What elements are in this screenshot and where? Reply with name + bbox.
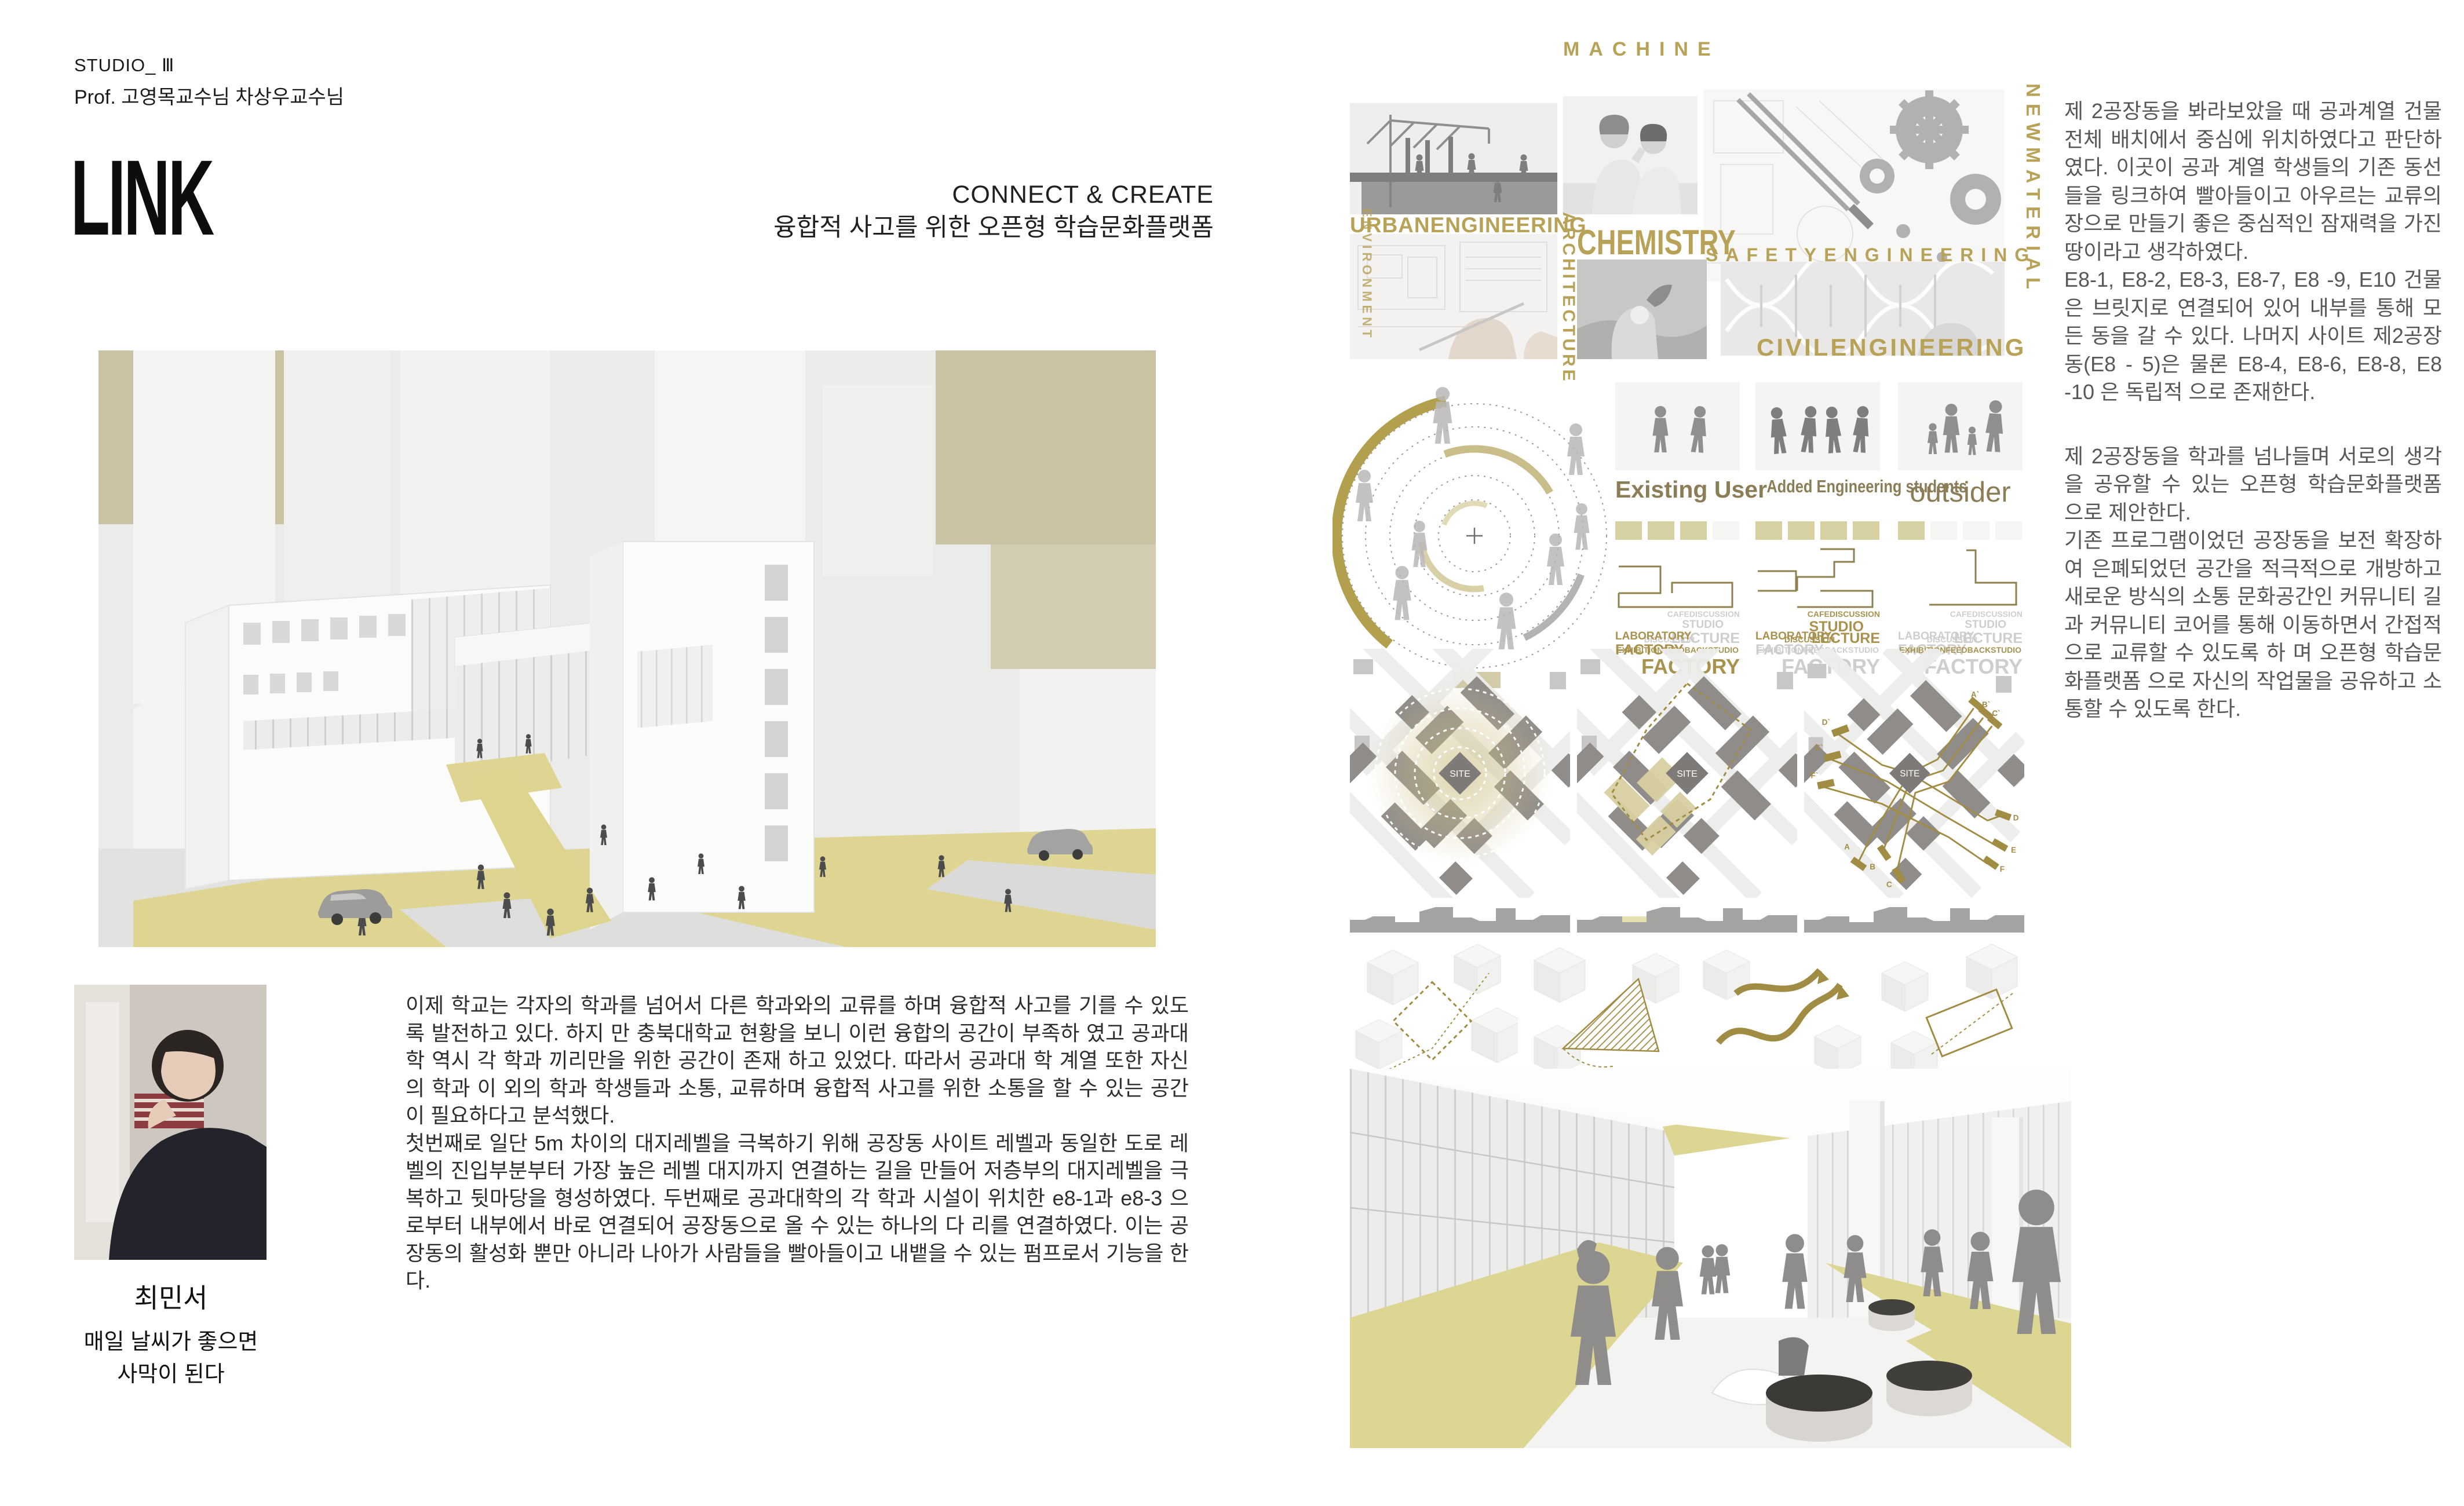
cloud-word: CAFEDISCUSSION [1950,609,2023,619]
right-paragraph-1: 제 2공장동을 봐라보았을 때 공과계열 건물 전체 배치에서 중심에 위치하였… [2064,97,2442,407]
program-squares-students [1755,521,1880,540]
footprint-diagram-outsider [1898,546,2023,609]
group-label-existing-user: Existing User [1615,476,1740,503]
author-motto-line1: 매일 날씨가 좋으면 [46,1326,295,1358]
route-label: F` [1811,772,1819,780]
cloud-word: LABORATORY [1898,630,1974,643]
route-label: A [1844,842,1850,851]
cloud-word: CAFEDISCUSSION [1667,609,1740,619]
route-label: E` [1815,744,1823,752]
author-photo [74,985,267,1260]
route-label: B [1870,862,1875,871]
collage-word-safetyengineering: SAFETYENGINEERING [1706,244,2036,266]
route-label: E [2011,846,2016,854]
circulation-circle-diagram [1333,371,1616,695]
program-squares-outsider [1898,521,2023,540]
intro-paragraph-1: 이제 학교는 각자의 학과를 넘어서 다른 학과와의 교류를 하며 융합적 사고… [406,992,1189,1129]
intro-text: 이제 학교는 각자의 학과를 넘어서 다른 학과와의 교류를 하며 융합적 사고… [406,992,1189,1295]
footprint-diagram-students [1755,546,1880,609]
subtitle-block: CONNECT & CREATE 융합적 사고를 위한 오픈형 학습문화플랫폼 [742,178,1214,244]
site-label: SITE [1677,769,1698,779]
plant-experiment-photo [1577,259,1707,359]
cloud-word: STUDIO [1965,619,2006,631]
collage-word-urbanengineering: URBANENGINEERING [1350,213,1587,237]
iso-diagram-ramp [1523,938,1691,1083]
author-photo-image [74,985,267,1260]
right-paragraph-2: 제 2공장동을 학과를 넘나들며 서로의 생각을 공유할 수 있는 오픈형 학습… [2064,443,2442,723]
cloud-word: LABORATORY [1615,630,1692,643]
professors-label: Prof. 고영목교수님 차상우교수님 [74,81,344,109]
site-map-bridge-connections: SITE [1577,649,1797,898]
program-squares-existing [1615,521,1740,540]
crane-photo [1350,103,1557,214]
site-map-center-potential: SITE [1350,649,1570,898]
site-analysis-maps: SITE SITE [1350,649,2045,1089]
cloud-word: STUDIO [1682,619,1724,631]
cloud-word: LABORATORY [1755,630,1832,643]
route-label: D` [1822,718,1830,727]
interior-render-image [1350,1069,2071,1448]
chemists-photo [1563,96,1698,214]
site-label: SITE [1450,769,1470,779]
architecture-hands-photo [1350,234,1557,359]
page-title: LINK [71,145,213,252]
subtitle-english: CONNECT & CREATE [742,178,1214,211]
route-label: A` [1971,690,1979,699]
group-label-added-students: Added Engineering students [1766,476,1868,497]
subtitle-korean: 융합적 사고를 위한 오픈형 학습문화플랫폼 [742,211,1214,244]
site-section-strip [1804,902,2024,933]
presentation-board: STUDIO_ Ⅲ Prof. 고영목교수님 차상우교수님 LINK CONNE… [0,0,2464,1506]
user-card-existing [1615,382,1740,470]
collage-word-machine: MACHINE [1563,38,1720,61]
site-section-strip [1577,902,1797,933]
author-motto-line2: 사막이 된다 [46,1358,295,1391]
route-label: C [1886,880,1892,889]
user-card-students [1755,382,1880,470]
exterior-render-image [98,350,1156,947]
user-card-outsider [1898,382,2023,470]
collage-word-civilengineering: CIVILENGINEERING [1757,334,2026,361]
site-label: SITE [1900,769,1919,779]
cloud-word: CAFEDISCUSSION [1808,609,1880,619]
route-label: C` [1992,709,2000,718]
route-label: B` [1982,700,1990,709]
route-label: F [2000,865,2005,873]
iso-diagram-flow [1695,938,1863,1083]
author-caption: 최민서 매일 날씨가 좋으면 사막이 된다 [46,1277,295,1391]
author-name: 최민서 [46,1277,295,1315]
footprint-diagram-existing [1615,546,1740,609]
site-section-strip [1350,902,1570,933]
studio-label: STUDIO_ Ⅲ [74,55,174,76]
intro-paragraph-2: 첫번째로 일단 5m 차이의 대지레벨을 극복하기 위해 공장동 사이트 레벨과… [406,1129,1189,1295]
engineering-collage: MACHINE NEWMATERIAL URBANENGINEERING ARC… [1350,35,2045,359]
group-label-outsider: outsider [1898,476,2023,509]
collage-word-environment: ENVIRONMENT [1359,209,1374,341]
iso-diagram-extension [1868,938,2036,1083]
route-label: D [2013,814,2019,823]
collage-word-architecture: ARCHITECTURE [1558,212,1578,384]
iso-diagram-path [1350,938,1518,1083]
site-map-link-routes: A B C D E F A` B` C` D` E` F` SITE [1804,649,2024,898]
right-text-column: 제 2공장동을 봐라보았을 때 공과계열 건물 전체 배치에서 중심에 위치하였… [2064,97,2442,759]
